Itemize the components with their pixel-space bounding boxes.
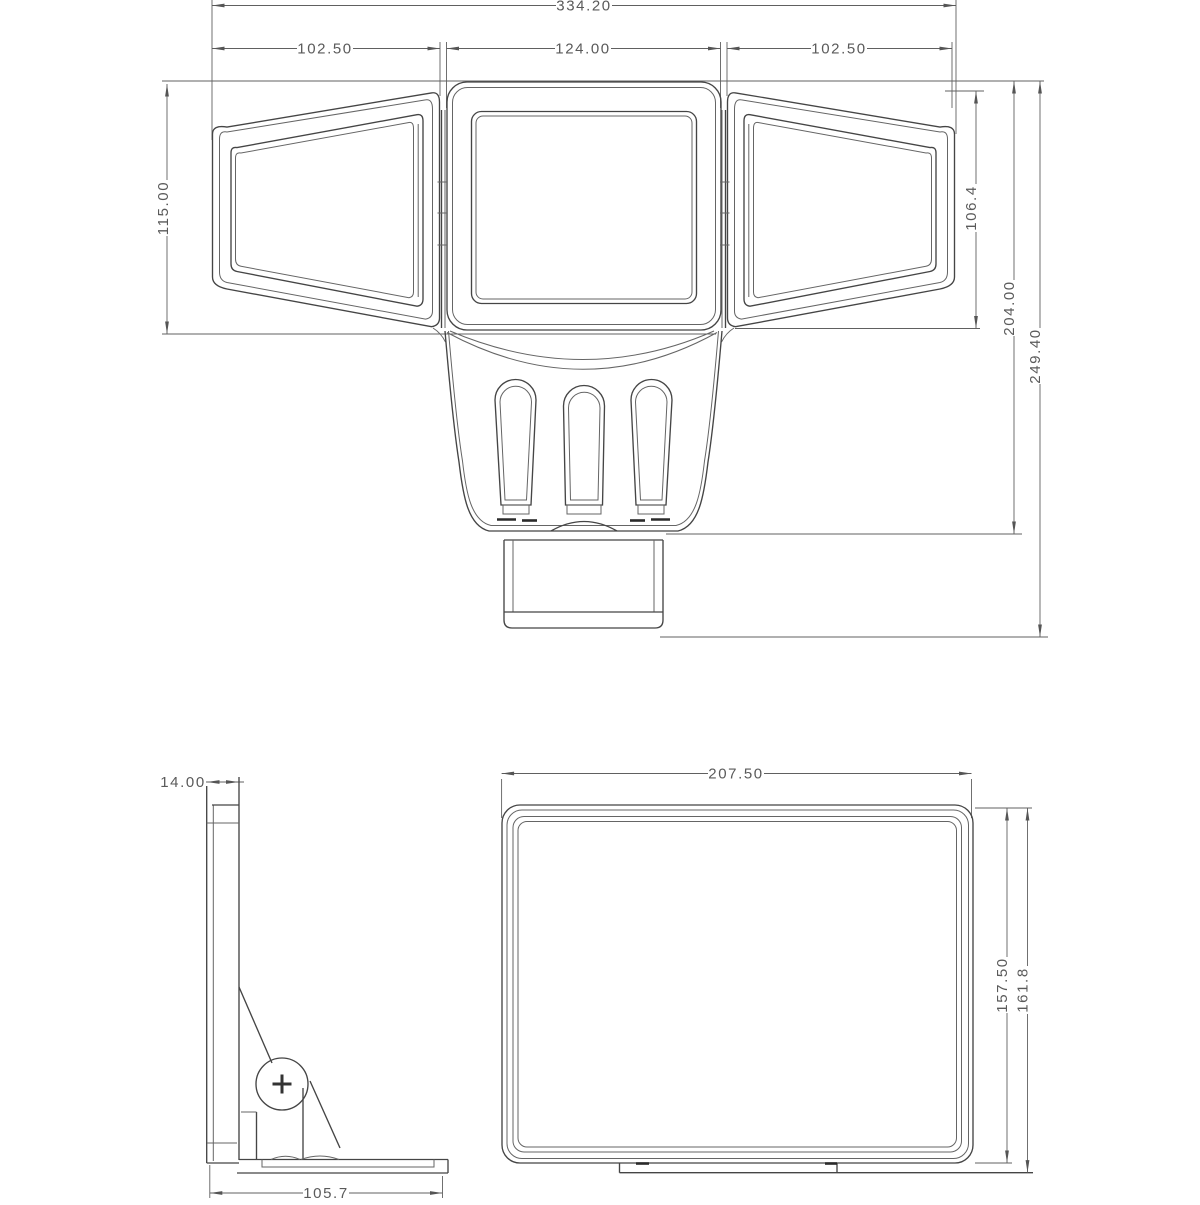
svg-text:207.50: 207.50 (708, 766, 763, 783)
svg-text:334.20: 334.20 (556, 0, 611, 15)
svg-text:161.8: 161.8 (1015, 967, 1032, 1013)
svg-text:115.00: 115.00 (155, 181, 172, 235)
svg-text:157.50: 157.50 (994, 957, 1011, 1012)
svg-text:105.7: 105.7 (303, 1185, 349, 1200)
svg-text:102.50: 102.50 (297, 41, 352, 58)
svg-text:106.4: 106.4 (963, 185, 980, 231)
svg-text:124.00: 124.00 (555, 41, 610, 58)
svg-text:249.40: 249.40 (1027, 328, 1044, 383)
svg-text:102.50: 102.50 (811, 41, 866, 58)
svg-text:14.00: 14.00 (160, 774, 206, 791)
svg-text:204.00: 204.00 (1001, 280, 1018, 335)
